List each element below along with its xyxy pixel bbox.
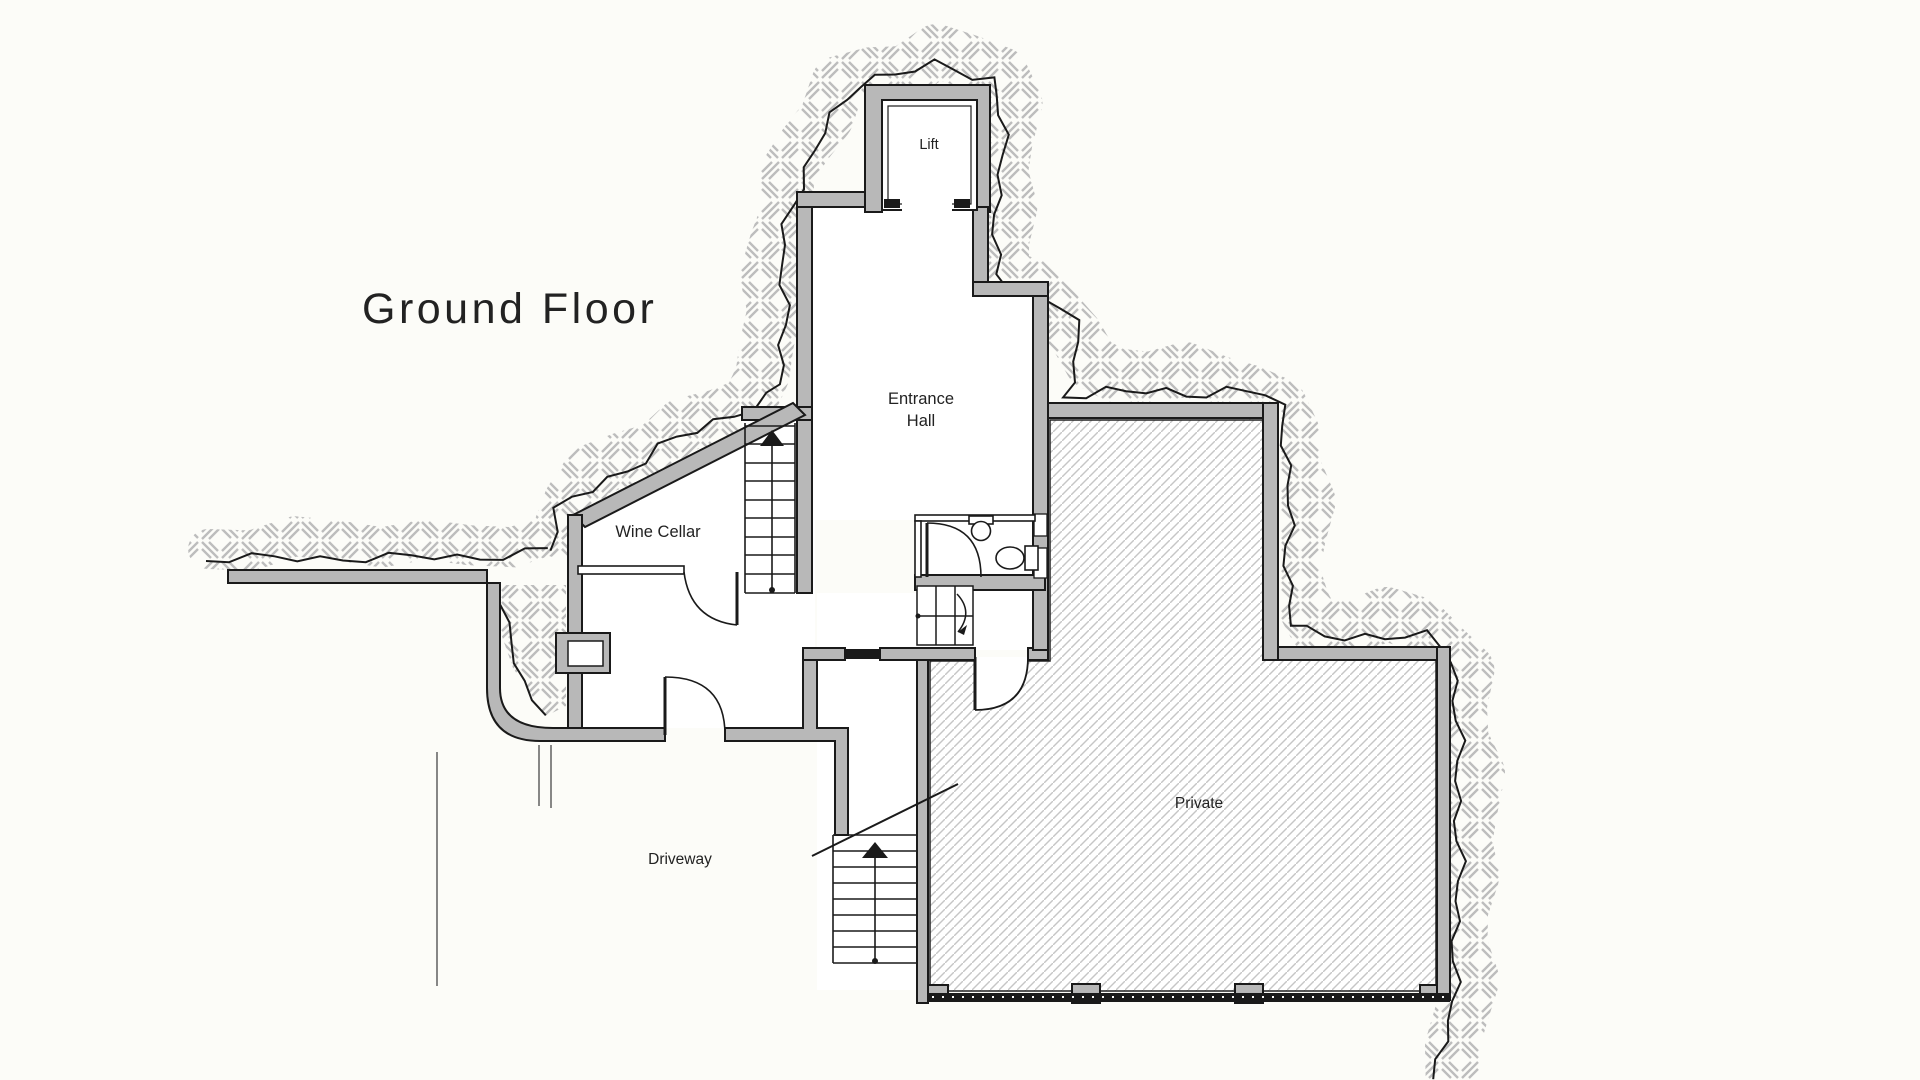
room-label-entrance-hall-line1: Entrance: [888, 390, 954, 408]
page-title: Ground Floor: [362, 285, 657, 333]
south-glazing-band: [928, 993, 1450, 1002]
lift-door-jamb-right: [954, 199, 970, 208]
hall-west-wall: [797, 192, 812, 593]
sink: [969, 516, 993, 541]
ground-band-pocket: [492, 585, 566, 716]
driveway-edges: [437, 745, 551, 986]
lift-detail: [882, 100, 977, 214]
stairwell-east-wall: [917, 660, 928, 1003]
front-wall-west: [803, 648, 845, 660]
lift-connector-wall: [797, 192, 865, 207]
front-wall-mid: [880, 648, 975, 660]
cellar-west-wall-upper: [568, 515, 582, 635]
hall-east-step-wall: [973, 282, 1048, 296]
front-door-threshold: [845, 649, 880, 659]
room-label-driveway: Driveway: [648, 851, 712, 868]
entry-steps: [916, 586, 974, 645]
cellar-window: [568, 641, 603, 666]
room-label-entrance-hall-line2: Hall: [907, 412, 935, 430]
wc-west-wall: [915, 521, 921, 577]
private-lower-top-wall: [1278, 647, 1450, 660]
toilet: [996, 546, 1038, 570]
room-label-private: Private: [1175, 795, 1223, 812]
room-label-lift: Lift: [919, 137, 938, 153]
floor-plan-drawing: Ground Floor Lift Entrance Hall Wine Cel…: [0, 0, 1920, 1080]
cellar-partition-wall: [578, 566, 684, 574]
ground-band-left: [208, 533, 556, 551]
lift-door-jamb-left: [884, 199, 900, 208]
cellar-west-wall-lower: [568, 673, 582, 730]
private-top-wall: [1048, 403, 1278, 418]
room-label-wine-cellar: Wine Cellar: [615, 523, 701, 541]
private-right-wall-upper: [1263, 403, 1278, 660]
private-right-wall-lower: [1437, 647, 1450, 1000]
floor-plan-page: Ground Floor Lift Entrance Hall Wine Cel…: [0, 0, 1920, 1080]
hall-east-wall-lower: [1033, 296, 1048, 650]
